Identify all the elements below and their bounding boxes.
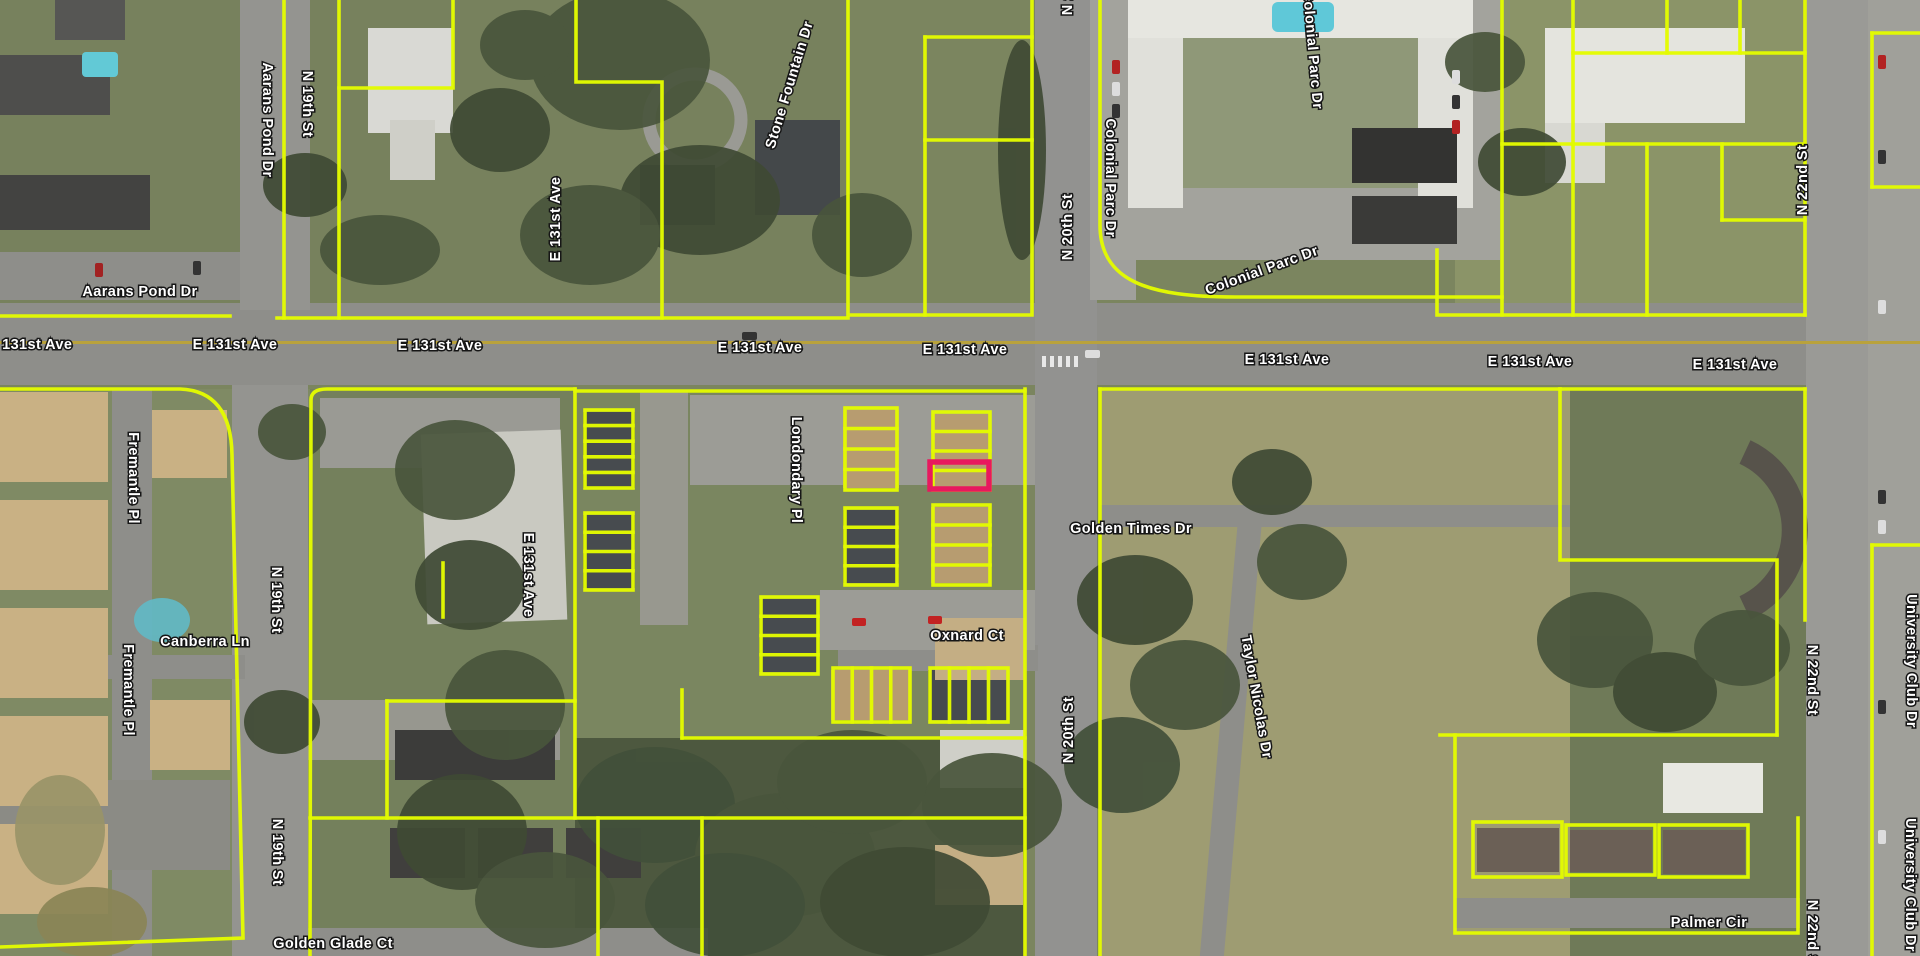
street-label: Colonial Parc Dr <box>1102 118 1118 237</box>
street-label: E 131st Ave <box>548 177 564 262</box>
street-label: N 19th St <box>299 71 315 137</box>
street-label: University Club Dr <box>1902 818 1918 952</box>
street-label: N 19th St <box>268 567 284 633</box>
street-label: N 22nd St <box>1804 900 1820 956</box>
street-label: Golden Times Dr <box>1070 521 1192 537</box>
street-label: E 131st Ave <box>1245 352 1330 368</box>
street-label: E 131st Ave <box>718 340 803 356</box>
street-label: Aarans Pond Dr <box>259 62 275 177</box>
street-label: Londondary Pl <box>788 417 804 524</box>
street-label: E 131st Ave <box>193 337 278 353</box>
street-label: Fremantle Pl <box>125 432 141 524</box>
map-viewport[interactable]: Aarans Pond DrN 19th StAarans Pond DrE 1… <box>0 0 1920 956</box>
street-label: Golden Glade Ct <box>273 936 393 952</box>
street-label: Fremantle Pl <box>120 644 136 736</box>
street-label: E 131st Ave <box>1693 357 1778 373</box>
street-label: Canberra Ln <box>160 634 250 650</box>
street-label: E 131st Ave <box>398 338 483 354</box>
street-label: N 20th St <box>1060 194 1076 260</box>
street-label: E 131st Ave <box>0 337 72 353</box>
street-label: Oxnard Ct <box>930 628 1004 644</box>
street-label: N 20th St <box>1060 0 1076 15</box>
street-label: N 19th St <box>269 819 285 885</box>
street-label: N 20th St <box>1061 697 1077 763</box>
parcel-map-canvas[interactable]: Aarans Pond DrN 19th StAarans Pond DrE 1… <box>0 0 1920 956</box>
street-label: Aarans Pond Dr <box>82 284 197 300</box>
street-label: Palmer Cir <box>1671 915 1748 931</box>
street-label: N 22nd St <box>1804 645 1820 715</box>
street-label: E 131st Ave <box>520 533 536 618</box>
street-label: University Club Dr <box>1903 594 1919 728</box>
street-label: E 131st Ave <box>1488 354 1573 370</box>
street-label: N 22nd St <box>1795 145 1811 215</box>
street-label: E 131st Ave <box>923 342 1008 358</box>
